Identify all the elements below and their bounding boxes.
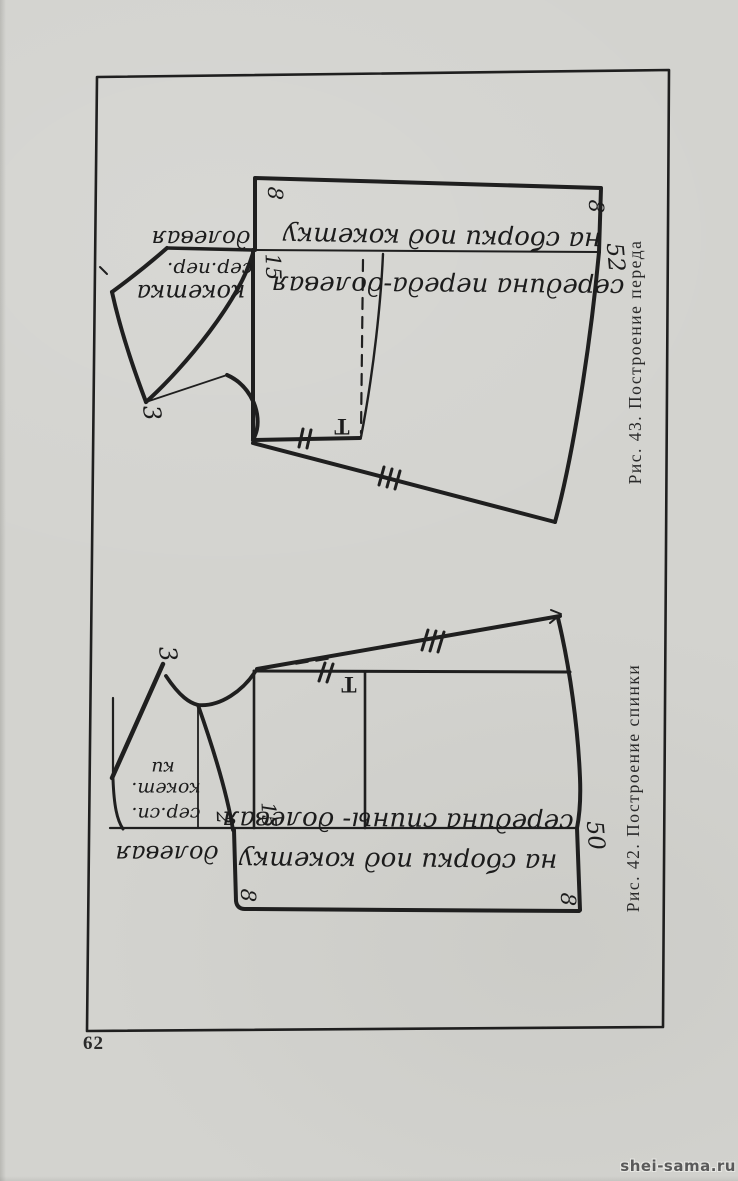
back-dim-2: 2 — [212, 810, 236, 825]
front-yoke-label-line2: сер.пер. — [167, 258, 253, 282]
front-point-t: T — [334, 414, 349, 439]
back-yoke-sweep-curve — [166, 672, 255, 705]
site-watermark: shei-sama.ru — [536, 1157, 736, 1175]
back-yoke-label-line3: ки — [151, 757, 175, 779]
back-point-t: T — [341, 672, 356, 697]
front-skirt-slant — [253, 443, 555, 522]
back-dim-15: 15 — [257, 802, 282, 828]
back-yoke-label-line2: кокет. — [131, 778, 200, 800]
back-band-label: на сборки под кокетку — [238, 845, 557, 878]
back-body-top-line — [254, 671, 570, 672]
front-dim-3: 3 — [137, 403, 167, 422]
back-dim-8-left: 8 — [236, 888, 260, 902]
scanned-book-page: на сборки под кокетку середина переда-до… — [0, 0, 738, 1181]
figure-front-drawing: на сборки под кокетку середина переда-до… — [100, 178, 645, 522]
back-dim-50: 50 — [581, 820, 609, 851]
back-dim-3: 3 — [153, 644, 183, 663]
page-number: 62 — [83, 1033, 104, 1055]
back-skirt-side — [558, 618, 580, 828]
figure-frame — [87, 70, 669, 1031]
back-grain-label: долевая — [115, 840, 218, 868]
back-yoke-label-line1: сер.сп. — [131, 803, 200, 825]
front-yoke-left-edge — [112, 292, 146, 402]
front-dim-15: 15 — [261, 253, 286, 281]
figure-back-drawing: на сборки под кокетку середина спины- до… — [110, 610, 643, 912]
back-neck-curve — [113, 779, 123, 829]
front-yoke-label-line1: кокетка — [137, 279, 246, 307]
back-triple-notch — [422, 630, 444, 652]
front-band-label: на сборки под кокетку — [282, 220, 601, 256]
front-center-label: середина переда-долевая — [271, 269, 624, 302]
page-artwork: на сборки под кокетку середина переда-до… — [0, 0, 738, 1181]
back-dim-8-right: 8 — [556, 892, 580, 906]
front-dim-8-left: 8 — [263, 186, 287, 200]
front-triple-notch — [379, 467, 400, 489]
front-grain-label: долевая — [151, 225, 250, 251]
figure-43-caption: Рис. 43. Построение переда — [625, 240, 645, 485]
front-dim-8-right: 8 — [584, 199, 608, 213]
front-shoulder-tick — [100, 267, 107, 274]
figure-42-caption: Рис. 42. Построение спинки — [623, 664, 643, 912]
back-skirt-slant — [257, 616, 560, 669]
